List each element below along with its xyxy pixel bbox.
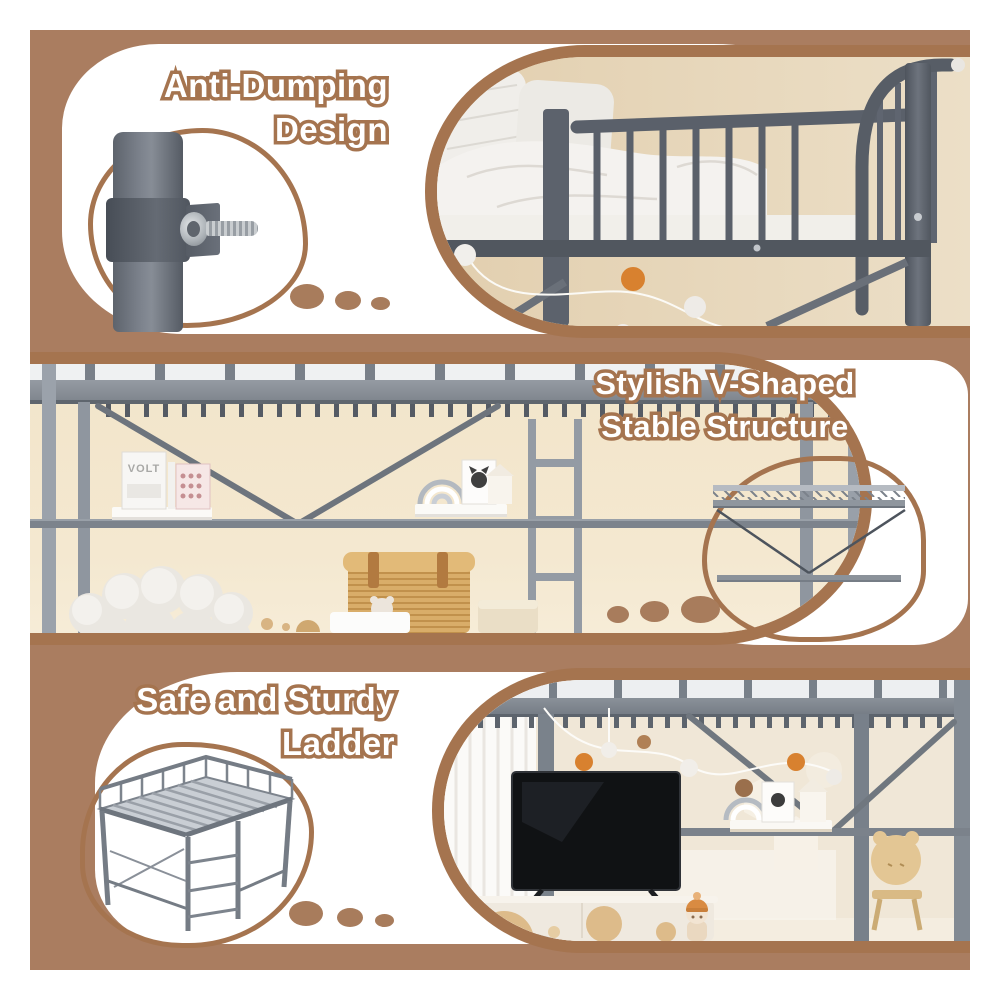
decor-dot bbox=[640, 601, 669, 622]
feature-title-v-shaped: Stylish V-Shaped Stable Structure bbox=[538, 362, 912, 448]
ladder-rungs bbox=[188, 855, 238, 917]
screw bbox=[914, 213, 922, 221]
decor-dot bbox=[371, 297, 390, 310]
sideboard bbox=[448, 896, 718, 941]
decor-dot bbox=[337, 908, 363, 927]
fabric-bin bbox=[478, 600, 538, 633]
title-line: Stable Structure bbox=[538, 405, 912, 448]
v-brace-diagram bbox=[702, 456, 926, 642]
decor-dot bbox=[289, 901, 323, 926]
ladder-frame-render bbox=[80, 742, 314, 948]
cross-braces bbox=[110, 849, 186, 887]
arch-knob bbox=[951, 58, 965, 72]
screw bbox=[754, 245, 761, 252]
title-line: Stylish V-Shaped bbox=[538, 362, 912, 405]
v-structure-drawing bbox=[707, 461, 911, 627]
loft-bed-tv-room-photo bbox=[432, 668, 970, 953]
ladder-frame-drawing bbox=[88, 751, 300, 935]
loft-bed-top-bedding-photo bbox=[425, 45, 970, 338]
decor-dot bbox=[681, 596, 720, 623]
bed-post-right bbox=[905, 63, 931, 326]
product-feature-graphic: Anti-Dumping Design bbox=[0, 0, 1000, 1000]
tv-room-scene bbox=[444, 680, 970, 941]
bed-underside bbox=[444, 680, 970, 728]
decor-dot bbox=[375, 914, 394, 927]
title-line: Safe and Sturdy bbox=[136, 678, 395, 722]
lower-rail bbox=[437, 240, 931, 257]
title-line: Anti-Dumping bbox=[164, 64, 388, 108]
decor-dot bbox=[290, 284, 324, 309]
poster-text: VOLT bbox=[128, 463, 161, 475]
threaded-rod bbox=[206, 221, 258, 236]
tv bbox=[512, 772, 680, 904]
bolt-center bbox=[187, 221, 200, 237]
clamp-illustration bbox=[106, 198, 190, 262]
decor-dot bbox=[335, 291, 361, 310]
bed-top-scene bbox=[437, 57, 970, 326]
decor-dot bbox=[607, 606, 629, 623]
